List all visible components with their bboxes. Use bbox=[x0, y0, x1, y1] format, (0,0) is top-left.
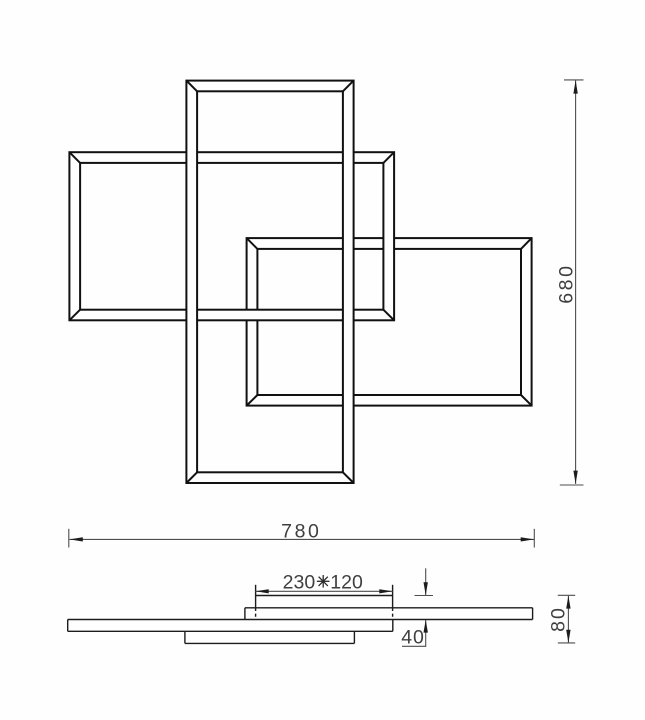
svg-text:40: 40 bbox=[401, 627, 424, 649]
svg-text:80: 80 bbox=[547, 606, 569, 632]
svg-text:680: 680 bbox=[556, 263, 578, 303]
svg-text:780: 780 bbox=[281, 520, 321, 542]
svg-text:230: 230 bbox=[283, 572, 316, 594]
svg-text:120: 120 bbox=[330, 572, 363, 594]
